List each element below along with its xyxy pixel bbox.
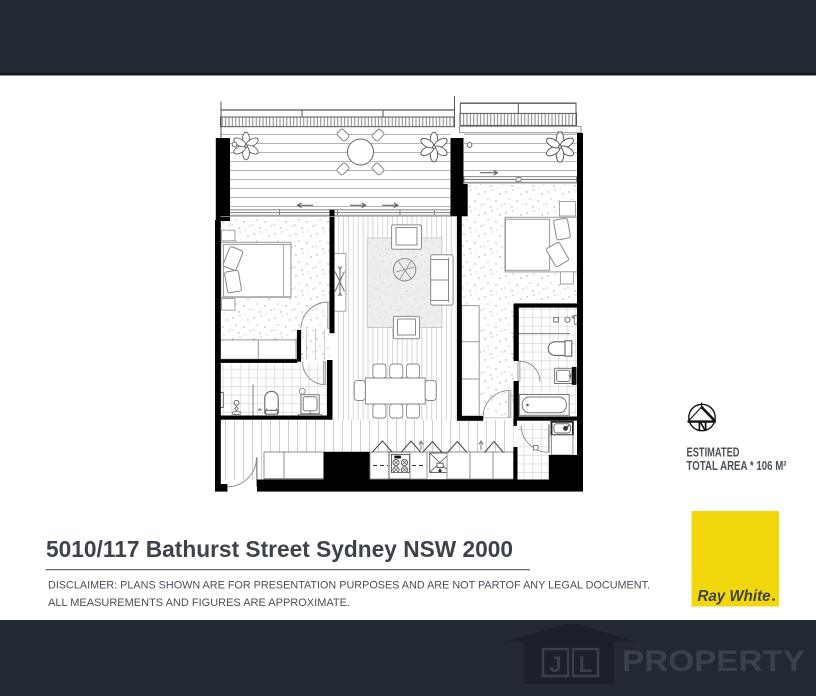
svg-text:Ray White: Ray White [698, 588, 771, 605]
svg-text:ESTIMATED: ESTIMATED [687, 446, 740, 460]
svg-text:DISCLAIMER: PLANS SHOWN ARE FO: DISCLAIMER: PLANS SHOWN ARE FOR PRESENTA… [48, 580, 650, 592]
svg-text:5010/117 Bathurst Street Sydne: 5010/117 Bathurst Street Sydney NSW 2000 [46, 536, 513, 562]
svg-text:PROPERTY: PROPERTY [622, 645, 805, 678]
svg-text:L: L [579, 652, 592, 677]
svg-text:N: N [698, 419, 708, 434]
svg-text:J: J [549, 652, 561, 677]
svg-text:ALL MEASUREMENTS AND FIGURES A: ALL MEASUREMENTS AND FIGURES ARE APPROXI… [48, 597, 350, 609]
svg-text:TOTAL AREA * 106 M²: TOTAL AREA * 106 M² [687, 459, 787, 473]
